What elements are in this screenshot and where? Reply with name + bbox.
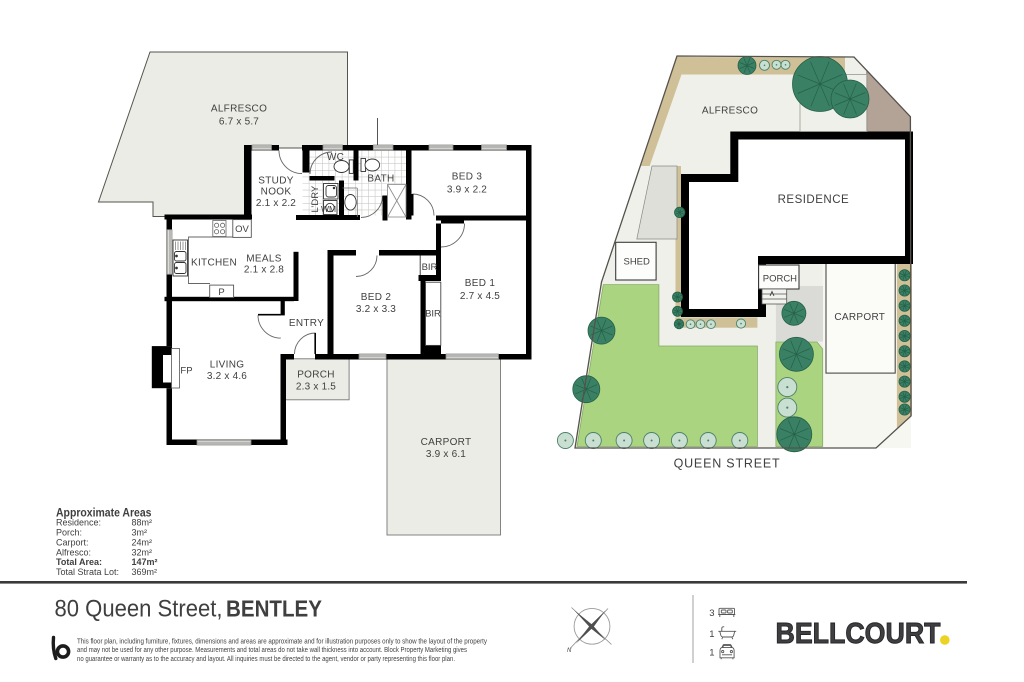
svg-text:RESIDENCE: RESIDENCE: [778, 194, 850, 206]
svg-text:STUDY: STUDY: [258, 176, 293, 187]
svg-text:Residence:: Residence:: [56, 518, 101, 528]
svg-text:3.2 x 3.3: 3.2 x 3.3: [356, 304, 396, 315]
svg-text:Total Strata Lot:: Total Strata Lot:: [56, 567, 119, 577]
svg-text:Total Area:: Total Area:: [56, 557, 102, 567]
svg-text:QUEEN STREET: QUEEN STREET: [674, 457, 781, 471]
svg-text:6.7 x 5.7: 6.7 x 5.7: [219, 117, 259, 128]
svg-text:N: N: [567, 648, 572, 654]
svg-text:2.7 x 4.5: 2.7 x 4.5: [460, 291, 500, 302]
svg-text:PORCH: PORCH: [297, 370, 335, 381]
svg-text:KITCHEN: KITCHEN: [191, 258, 237, 269]
svg-text:no guarantee or warranty as to: no guarantee or warranty as to the accur…: [77, 656, 455, 663]
svg-text:147m²: 147m²: [132, 557, 158, 567]
svg-text:24m²: 24m²: [132, 538, 153, 548]
svg-text:Alfresco:: Alfresco:: [56, 548, 91, 558]
svg-text:BIR: BIR: [422, 262, 438, 273]
svg-text:2.1 x 2.8: 2.1 x 2.8: [244, 265, 284, 276]
svg-text:WM: WM: [321, 204, 336, 214]
svg-text:PORCH: PORCH: [763, 274, 797, 285]
svg-text:BED 3: BED 3: [452, 172, 483, 183]
svg-text:Porch:: Porch:: [56, 528, 82, 538]
svg-text:88m²: 88m²: [132, 518, 153, 528]
svg-text:BENTLEY: BENTLEY: [226, 596, 322, 622]
svg-text:32m²: 32m²: [132, 548, 153, 558]
svg-text:3.9 x 6.1: 3.9 x 6.1: [426, 449, 466, 460]
svg-text:L’DRY: L’DRY: [310, 185, 321, 212]
svg-text:FP: FP: [180, 366, 192, 377]
svg-text:CARPORT: CARPORT: [834, 312, 885, 323]
svg-text:LIVING: LIVING: [210, 360, 245, 371]
svg-text:ALFRESCO: ALFRESCO: [211, 104, 267, 115]
svg-text:3m²: 3m²: [132, 528, 148, 538]
svg-text:Carport:: Carport:: [56, 538, 89, 548]
svg-text:2.1 x 2.2: 2.1 x 2.2: [256, 198, 296, 209]
svg-text:and may not be used for any ot: and may not be used for any other purpos…: [77, 647, 467, 654]
svg-text:ALFRESCO: ALFRESCO: [702, 106, 758, 117]
svg-text:BED 1: BED 1: [465, 278, 496, 289]
svg-text:ENTRY: ENTRY: [289, 318, 324, 329]
svg-text:2.3 x 1.5: 2.3 x 1.5: [296, 382, 336, 393]
svg-text:BED 2: BED 2: [361, 292, 392, 303]
svg-text:1: 1: [709, 629, 714, 640]
svg-text:NOOK: NOOK: [261, 187, 292, 198]
svg-text:SHED: SHED: [623, 257, 650, 268]
svg-text:OV: OV: [235, 224, 249, 235]
svg-text:3: 3: [709, 608, 714, 619]
svg-text:WC: WC: [327, 152, 344, 163]
svg-text:3.2 x 4.6: 3.2 x 4.6: [207, 371, 247, 382]
svg-text:CARPORT: CARPORT: [421, 437, 472, 448]
svg-text:MEALS: MEALS: [246, 254, 281, 265]
svg-text:BATH: BATH: [367, 174, 394, 185]
svg-text:P: P: [218, 287, 224, 298]
svg-text:This floor plan, including fur: This floor plan, including furniture, fi…: [77, 639, 487, 646]
svg-text:1: 1: [709, 648, 714, 659]
svg-text:80 Queen Street,: 80 Queen Street,: [55, 596, 223, 623]
svg-text:BELLCOURT: BELLCOURT: [776, 618, 941, 650]
svg-text:369m²: 369m²: [132, 567, 158, 577]
svg-text:BIR: BIR: [425, 309, 441, 320]
svg-text:3.9 x 2.2: 3.9 x 2.2: [447, 185, 487, 196]
